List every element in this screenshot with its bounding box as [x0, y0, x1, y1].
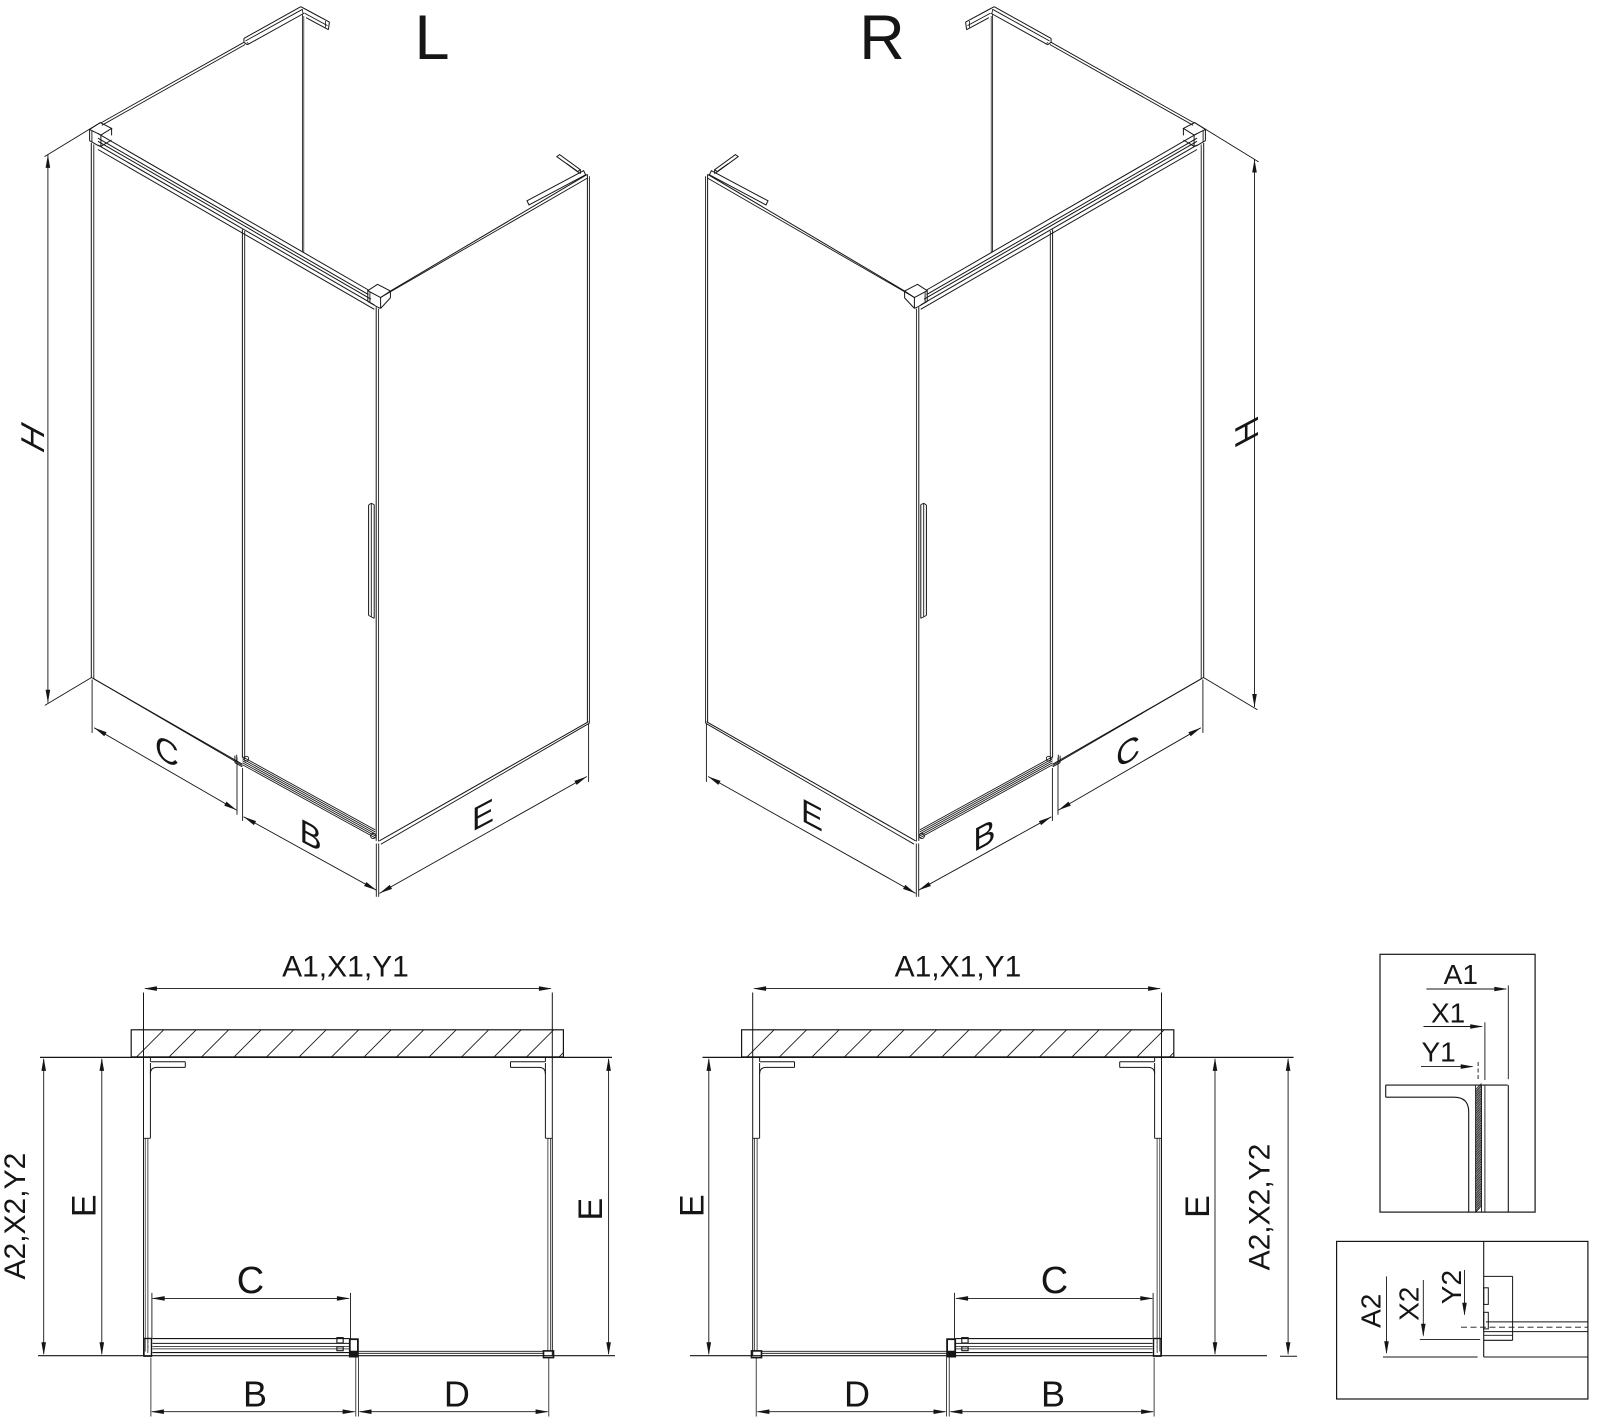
svg-text:E: E — [572, 1198, 610, 1221]
svg-text:X2: X2 — [1394, 1287, 1425, 1321]
svg-text:R: R — [859, 3, 905, 73]
svg-text:C: C — [1041, 1260, 1068, 1302]
svg-text:E: E — [673, 1194, 711, 1217]
svg-text:D: D — [844, 1373, 870, 1414]
svg-text:A2,X2,Y2: A2,X2,Y2 — [1244, 1144, 1277, 1271]
svg-text:A2,X2,Y2: A2,X2,Y2 — [0, 1153, 32, 1280]
svg-text:B: B — [243, 1373, 267, 1414]
svg-text:A2: A2 — [1356, 1294, 1387, 1328]
svg-text:D: D — [444, 1373, 470, 1414]
svg-text:C: C — [237, 1260, 264, 1302]
svg-text:A1,X1,Y1: A1,X1,Y1 — [282, 950, 409, 983]
svg-text:A1,X1,Y1: A1,X1,Y1 — [895, 950, 1022, 983]
svg-text:A1: A1 — [1444, 959, 1478, 990]
svg-text:E: E — [65, 1194, 103, 1217]
svg-text:X1: X1 — [1431, 998, 1465, 1029]
svg-text:E: E — [1179, 1195, 1217, 1218]
svg-text:L: L — [414, 3, 449, 73]
svg-text:Y2: Y2 — [1436, 1270, 1467, 1304]
svg-text:Y1: Y1 — [1421, 1037, 1455, 1068]
svg-text:B: B — [1041, 1373, 1065, 1414]
